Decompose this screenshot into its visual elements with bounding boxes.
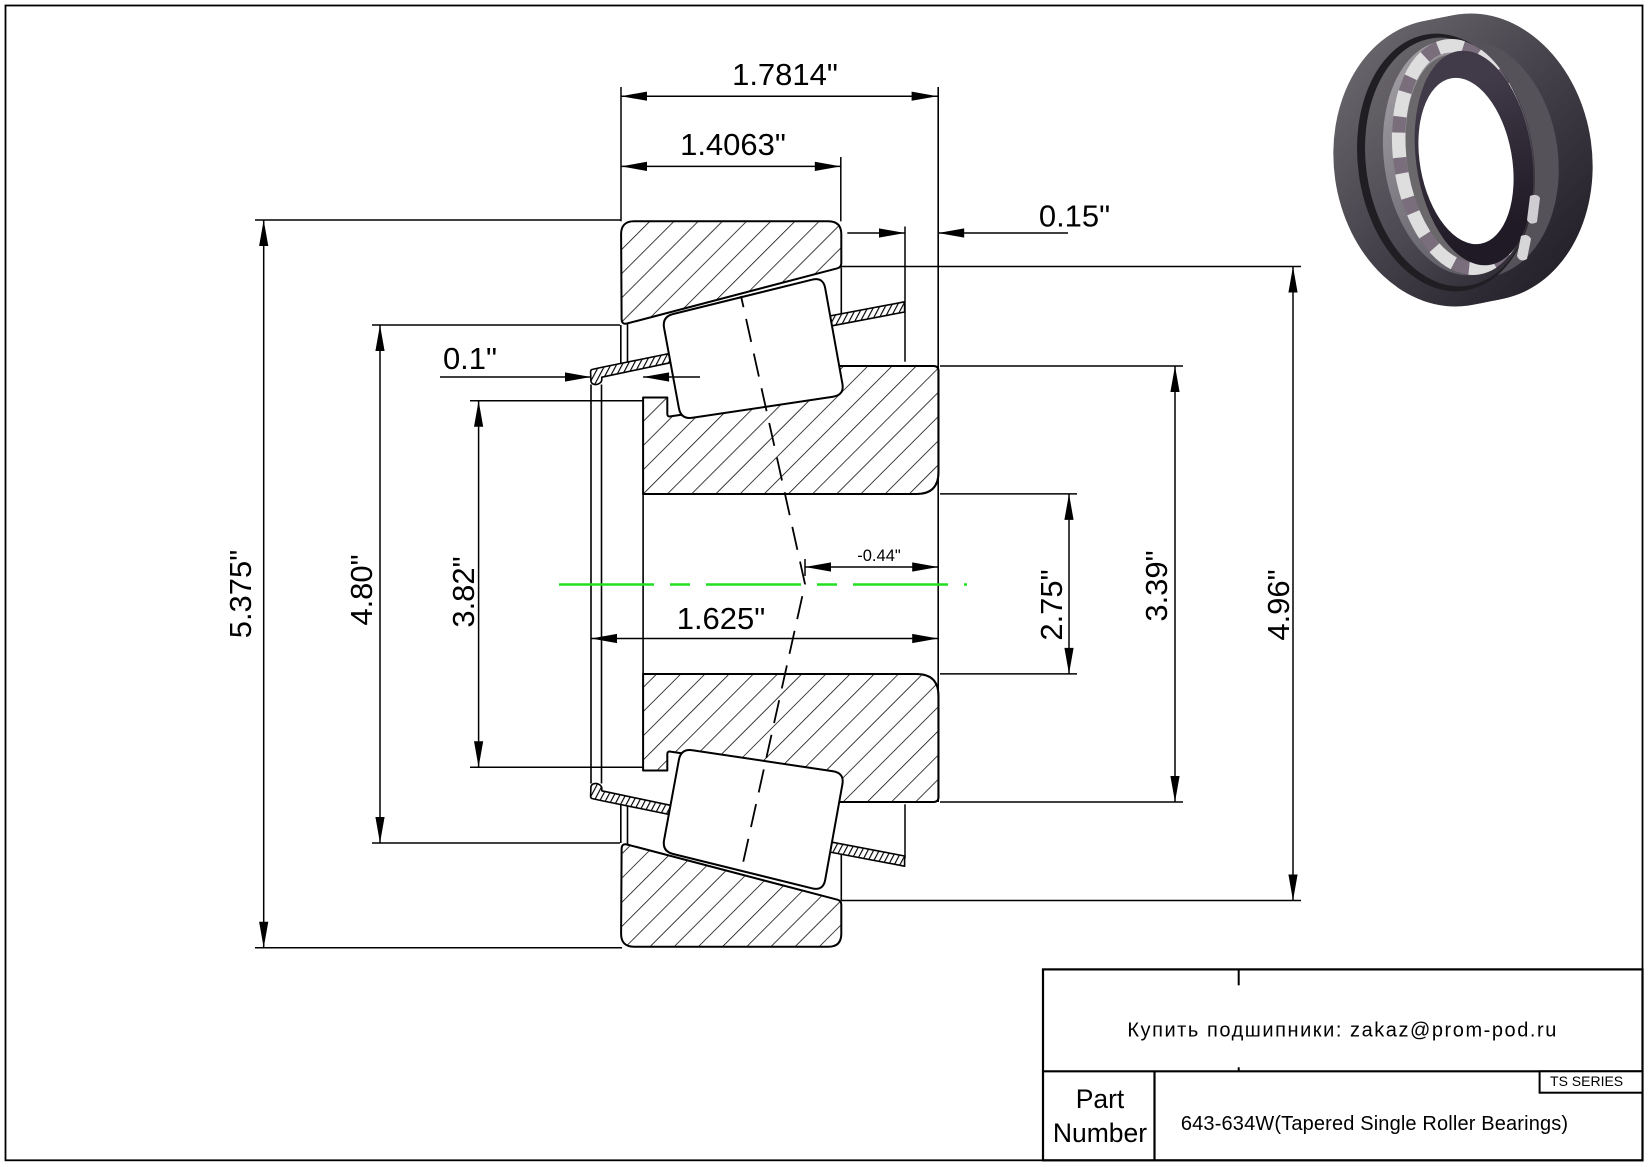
svg-text:4.96": 4.96" — [1261, 569, 1296, 640]
svg-text:1.625": 1.625" — [677, 601, 766, 636]
svg-text:-0.44": -0.44" — [857, 547, 901, 565]
svg-text:5.375": 5.375" — [223, 550, 258, 639]
svg-text:643-634W(Tapered Single Roller: 643-634W(Tapered Single Roller Bearings) — [1181, 1113, 1568, 1135]
svg-text:0.1": 0.1" — [443, 341, 497, 376]
svg-text:Купить подшипники: zakaz@prom-: Купить подшипники: zakaz@prom-pod.ru — [1127, 1020, 1558, 1042]
svg-text:1.7814": 1.7814" — [732, 57, 838, 92]
svg-text:Part: Part — [1076, 1084, 1125, 1114]
svg-text:3.39": 3.39" — [1139, 550, 1174, 621]
svg-text:4.80": 4.80" — [344, 554, 379, 625]
svg-text:3.82": 3.82" — [446, 556, 481, 627]
svg-text:2.75": 2.75" — [1034, 569, 1069, 640]
svg-text:1.4063": 1.4063" — [680, 127, 786, 162]
svg-text:Number: Number — [1053, 1118, 1147, 1148]
svg-text:TS SERIES: TS SERIES — [1550, 1073, 1623, 1089]
svg-text:0.15": 0.15" — [1039, 199, 1110, 234]
